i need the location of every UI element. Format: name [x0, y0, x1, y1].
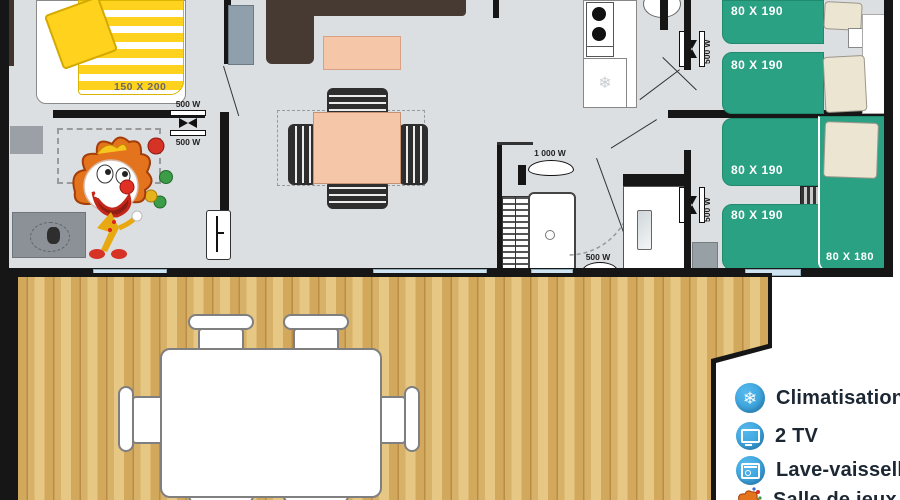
kids-door-handle: [216, 216, 218, 252]
dining-table: [313, 112, 401, 184]
floorplan-root: 150 X 200 500 W 500 W: [0, 0, 900, 500]
kids-shelf: [10, 126, 43, 154]
bath-wall-tick: [518, 165, 526, 185]
tv-icon: [736, 422, 764, 450]
heater-label-1000w: 1 000 W: [526, 148, 574, 158]
wc-fixture: [637, 210, 652, 250]
dining-chair-right: [399, 124, 428, 185]
vent-label-hall-bottom: 500 W: [702, 197, 712, 222]
pillow-2: [823, 55, 868, 113]
vent-label-master-top: 500 W: [170, 99, 206, 109]
bath-top-line: [497, 142, 533, 145]
heater-label-bath-500w: 500 W: [580, 252, 616, 262]
legend-label: Salle de jeux: [773, 489, 897, 500]
kids-room-right-wall: [220, 112, 229, 210]
bed-size-label-4: 80 X 190: [731, 208, 783, 222]
kids-door-handle-tick: [216, 232, 224, 234]
pillow-1: [823, 1, 862, 31]
bed-size-label-1: 80 X 190: [731, 4, 783, 18]
deck-table: [160, 348, 382, 498]
coffee-table: [323, 36, 401, 70]
legend-item-tv: 2 TV: [736, 422, 818, 450]
right-wall: [884, 0, 893, 277]
towel-rack-2: [515, 196, 529, 270]
bottom-bedroom-left-wall: [684, 150, 691, 268]
legend-label: Climatisation: [776, 387, 900, 410]
top-bedroom-left-wall: [684, 0, 691, 70]
desk-chair: [47, 227, 60, 244]
dining-chair-bottom: [327, 180, 388, 209]
stove-panel: [586, 46, 614, 57]
bunk-size-label: 80 X 180: [826, 251, 874, 263]
legend-label: Lave-vaisselle: [776, 459, 900, 482]
clown-icon: [735, 487, 762, 500]
dishwasher-icon: [736, 456, 765, 485]
snowflake-icon: ❄: [735, 383, 765, 413]
legend-item-lave-vaisselle: Lave-vaisselle: [736, 456, 900, 485]
stove-burner-1: [592, 7, 606, 21]
kids-room-door: [206, 210, 231, 260]
wc-top-wall: [623, 174, 689, 186]
hall-left-wall: [660, 0, 668, 30]
master-bed-size-label: 150 X 200: [114, 81, 166, 93]
sofa-arm: [266, 0, 314, 64]
legend-item-climatisation: ❄ Climatisation: [735, 383, 900, 413]
bed-size-label-2: 80 X 190: [731, 58, 783, 72]
vent-label-hall-top: 500 W: [702, 39, 712, 64]
legend-item-clown: Salle de jeux: [735, 487, 897, 500]
legend-label: 2 TV: [775, 425, 818, 448]
left-wall: [0, 0, 9, 277]
towel-rack-1: [502, 196, 516, 270]
stove-burner-2: [592, 27, 606, 41]
tall-cupboard: [228, 5, 254, 65]
pillow-bunk: [823, 121, 879, 179]
clown-illustration: [66, 132, 178, 260]
shower-drain: [545, 230, 555, 240]
bed-size-label-3: 80 X 190: [731, 163, 783, 177]
bath-heater-main: [528, 160, 574, 176]
kitchen-wall-stub: [493, 0, 499, 18]
fridge: ❄: [583, 58, 627, 108]
deck-chair-right-back: [404, 386, 420, 452]
